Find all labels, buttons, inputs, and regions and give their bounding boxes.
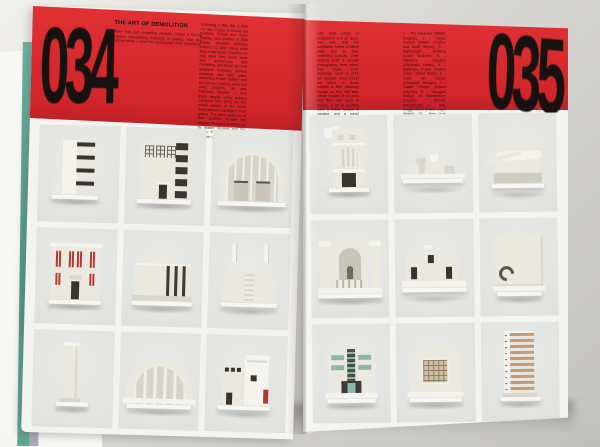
model-photo-spiral-relief-slab	[479, 217, 559, 317]
model-photo-lattice-window-station	[396, 323, 476, 423]
model-photo-layered-disc-museum	[478, 113, 558, 213]
model-photo-bauhaus-building	[124, 127, 207, 226]
model-photo-arch-window-house	[309, 115, 389, 215]
article-title-block: THE ART OF DEMOLITION More than just mod…	[114, 20, 203, 60]
article-title: THE ART OF DEMOLITION	[114, 20, 202, 30]
model-photo-de-stijl-house	[205, 334, 288, 433]
page-left[interactable]: 034 THE ART OF DEMOLITION More than just…	[21, 6, 305, 439]
red-header-right: Lots stark crisps of modernism and art d…	[303, 20, 568, 110]
model-photo-grand-arch-hall	[210, 129, 293, 228]
model-photo-brick-tower	[480, 322, 560, 422]
article-intro: More than just modelling wizards, Chisel…	[114, 30, 202, 48]
page-right[interactable]: Lots stark crisps of modernism and art d…	[303, 20, 568, 432]
model-grid-right	[309, 113, 560, 424]
model-photo-monolith-tower	[31, 329, 114, 428]
model-photo-teal-deco-cinema	[312, 324, 392, 424]
model-photo-ribbed-arch-stadium	[118, 332, 201, 431]
model-photo-stepped-facade	[37, 124, 120, 223]
magazine-spread-photo: 034 THE ART OF DEMOLITION More than just…	[0, 0, 600, 447]
model-photo-battersea-power-station	[207, 232, 290, 331]
model-grid-left	[31, 124, 293, 433]
red-header-left: 034 THE ART OF DEMOLITION More than just…	[30, 6, 305, 131]
model-photo-sprawling-museum	[393, 114, 473, 214]
article-column-left: Sounding a little like a kids' TV duo, C…	[197, 23, 248, 141]
model-photo-striped-hall	[121, 229, 204, 328]
page-number-left: 034	[39, 12, 116, 120]
model-photo-arched-niche-facade	[310, 219, 390, 319]
model-photo-red-window-theatre	[34, 227, 117, 326]
model-photo-blocky-village	[395, 218, 475, 318]
